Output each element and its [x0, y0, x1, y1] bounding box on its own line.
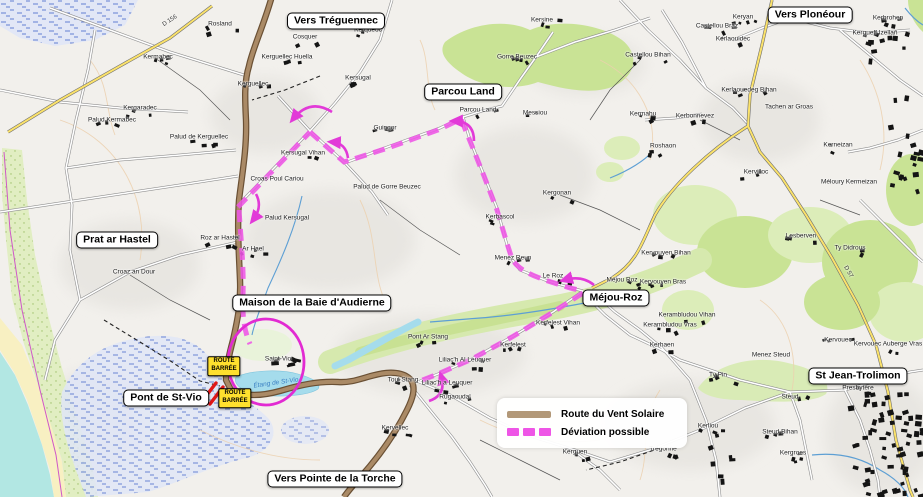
legend-swatch-deviation — [507, 428, 551, 436]
legend-swatch-route-solaire — [507, 411, 551, 418]
legend-item: Déviation possible — [507, 423, 677, 441]
legend-item-label: Déviation possible — [561, 427, 649, 438]
map-canvas[interactable]: RoslandCosquerKermabecKerguellec HuellaK… — [0, 0, 923, 497]
map-legend: Route du Vent SolaireDéviation possible — [497, 398, 687, 448]
legend-item: Route du Vent Solaire — [507, 405, 677, 423]
marsh-small — [281, 416, 329, 444]
legend-item-label: Route du Vent Solaire — [561, 409, 664, 420]
map-base-layer — [0, 0, 923, 497]
